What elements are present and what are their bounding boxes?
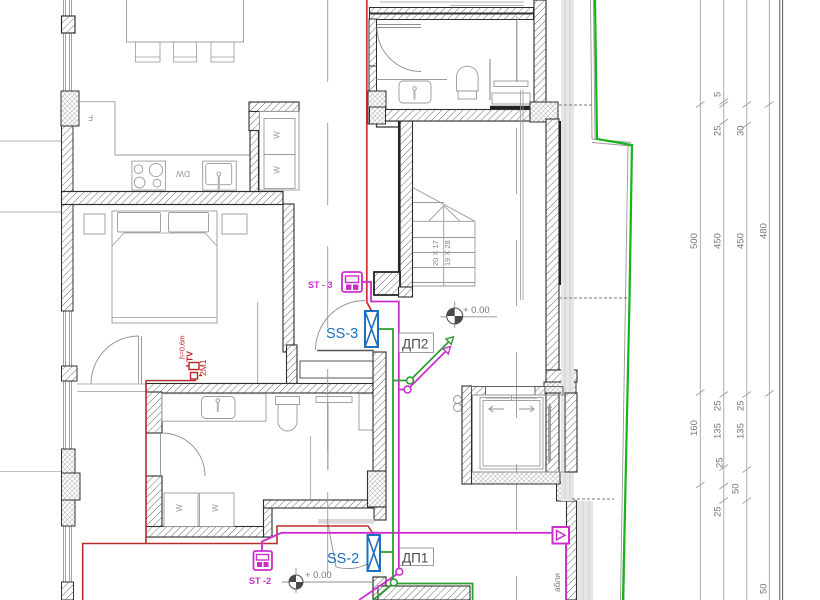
svg-text:SS-3: SS-3 bbox=[326, 326, 358, 342]
svg-text:W: W bbox=[175, 504, 184, 512]
svg-text:ST -2: ST -2 bbox=[249, 576, 271, 586]
svg-text:ДП1: ДП1 bbox=[402, 551, 428, 566]
svg-text:+ 0.00: + 0.00 bbox=[305, 570, 332, 581]
svg-text:25: 25 bbox=[715, 457, 726, 468]
svg-text:2M1: 2M1 bbox=[198, 359, 208, 376]
svg-text:5: 5 bbox=[713, 92, 724, 97]
svg-text:W: W bbox=[211, 504, 220, 512]
svg-text:SS-2: SS-2 bbox=[327, 551, 359, 567]
svg-text:TV: TV bbox=[185, 351, 195, 362]
svg-text:ST - 3: ST - 3 bbox=[308, 280, 333, 290]
svg-text:480: 480 bbox=[759, 223, 770, 239]
svg-text:450: 450 bbox=[736, 233, 747, 249]
svg-text:25: 25 bbox=[736, 400, 747, 411]
svg-text:W: W bbox=[273, 131, 282, 139]
svg-text:50: 50 bbox=[759, 583, 770, 594]
svg-text:500: 500 bbox=[689, 233, 700, 249]
svg-text:135: 135 bbox=[713, 423, 724, 439]
svg-text:абли: абли bbox=[552, 573, 562, 592]
svg-text:450: 450 bbox=[713, 233, 724, 249]
svg-text:W: W bbox=[273, 166, 282, 174]
svg-text:+ 0.00: + 0.00 bbox=[463, 305, 490, 316]
svg-text:135: 135 bbox=[736, 423, 747, 439]
svg-text:19 X 28: 19 X 28 bbox=[443, 240, 452, 266]
svg-text:ДП2: ДП2 bbox=[402, 337, 428, 352]
svg-text:DW: DW bbox=[176, 169, 190, 179]
svg-text:25: 25 bbox=[713, 125, 724, 136]
svg-text:25: 25 bbox=[713, 400, 724, 411]
svg-text:50: 50 bbox=[731, 483, 742, 494]
svg-text:20 X 17: 20 X 17 bbox=[431, 240, 440, 266]
svg-text:25: 25 bbox=[713, 506, 724, 517]
svg-text:30: 30 bbox=[736, 125, 747, 136]
svg-text:160: 160 bbox=[689, 420, 700, 436]
svg-text:F: F bbox=[88, 113, 93, 122]
